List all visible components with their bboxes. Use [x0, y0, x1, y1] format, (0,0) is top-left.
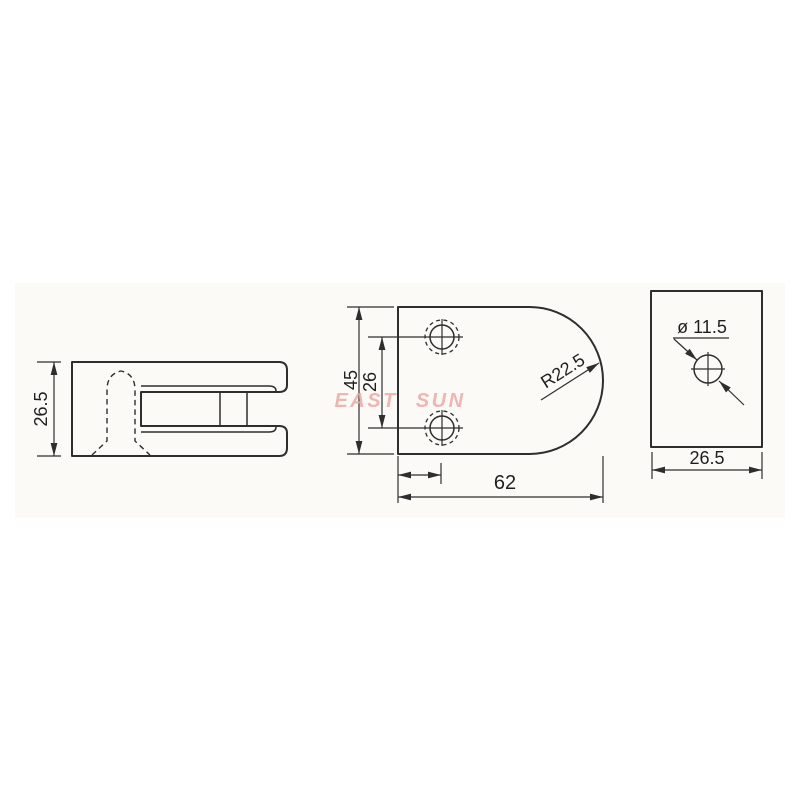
- hole-diameter-label: ø 11.5: [677, 317, 727, 337]
- hole-spacing-label: 26: [360, 372, 380, 392]
- side-height-label: 26.5: [31, 391, 51, 426]
- end-width-label: 26.5: [689, 448, 724, 468]
- watermark-text: EAST SUN: [334, 390, 465, 412]
- glass-clamp-technical-drawing: 26.5 45: [0, 0, 800, 800]
- front-height-label: 45: [341, 370, 361, 390]
- front-width-label: 62: [494, 472, 516, 494]
- engineering-drawing-page: 26.5 45: [0, 0, 800, 800]
